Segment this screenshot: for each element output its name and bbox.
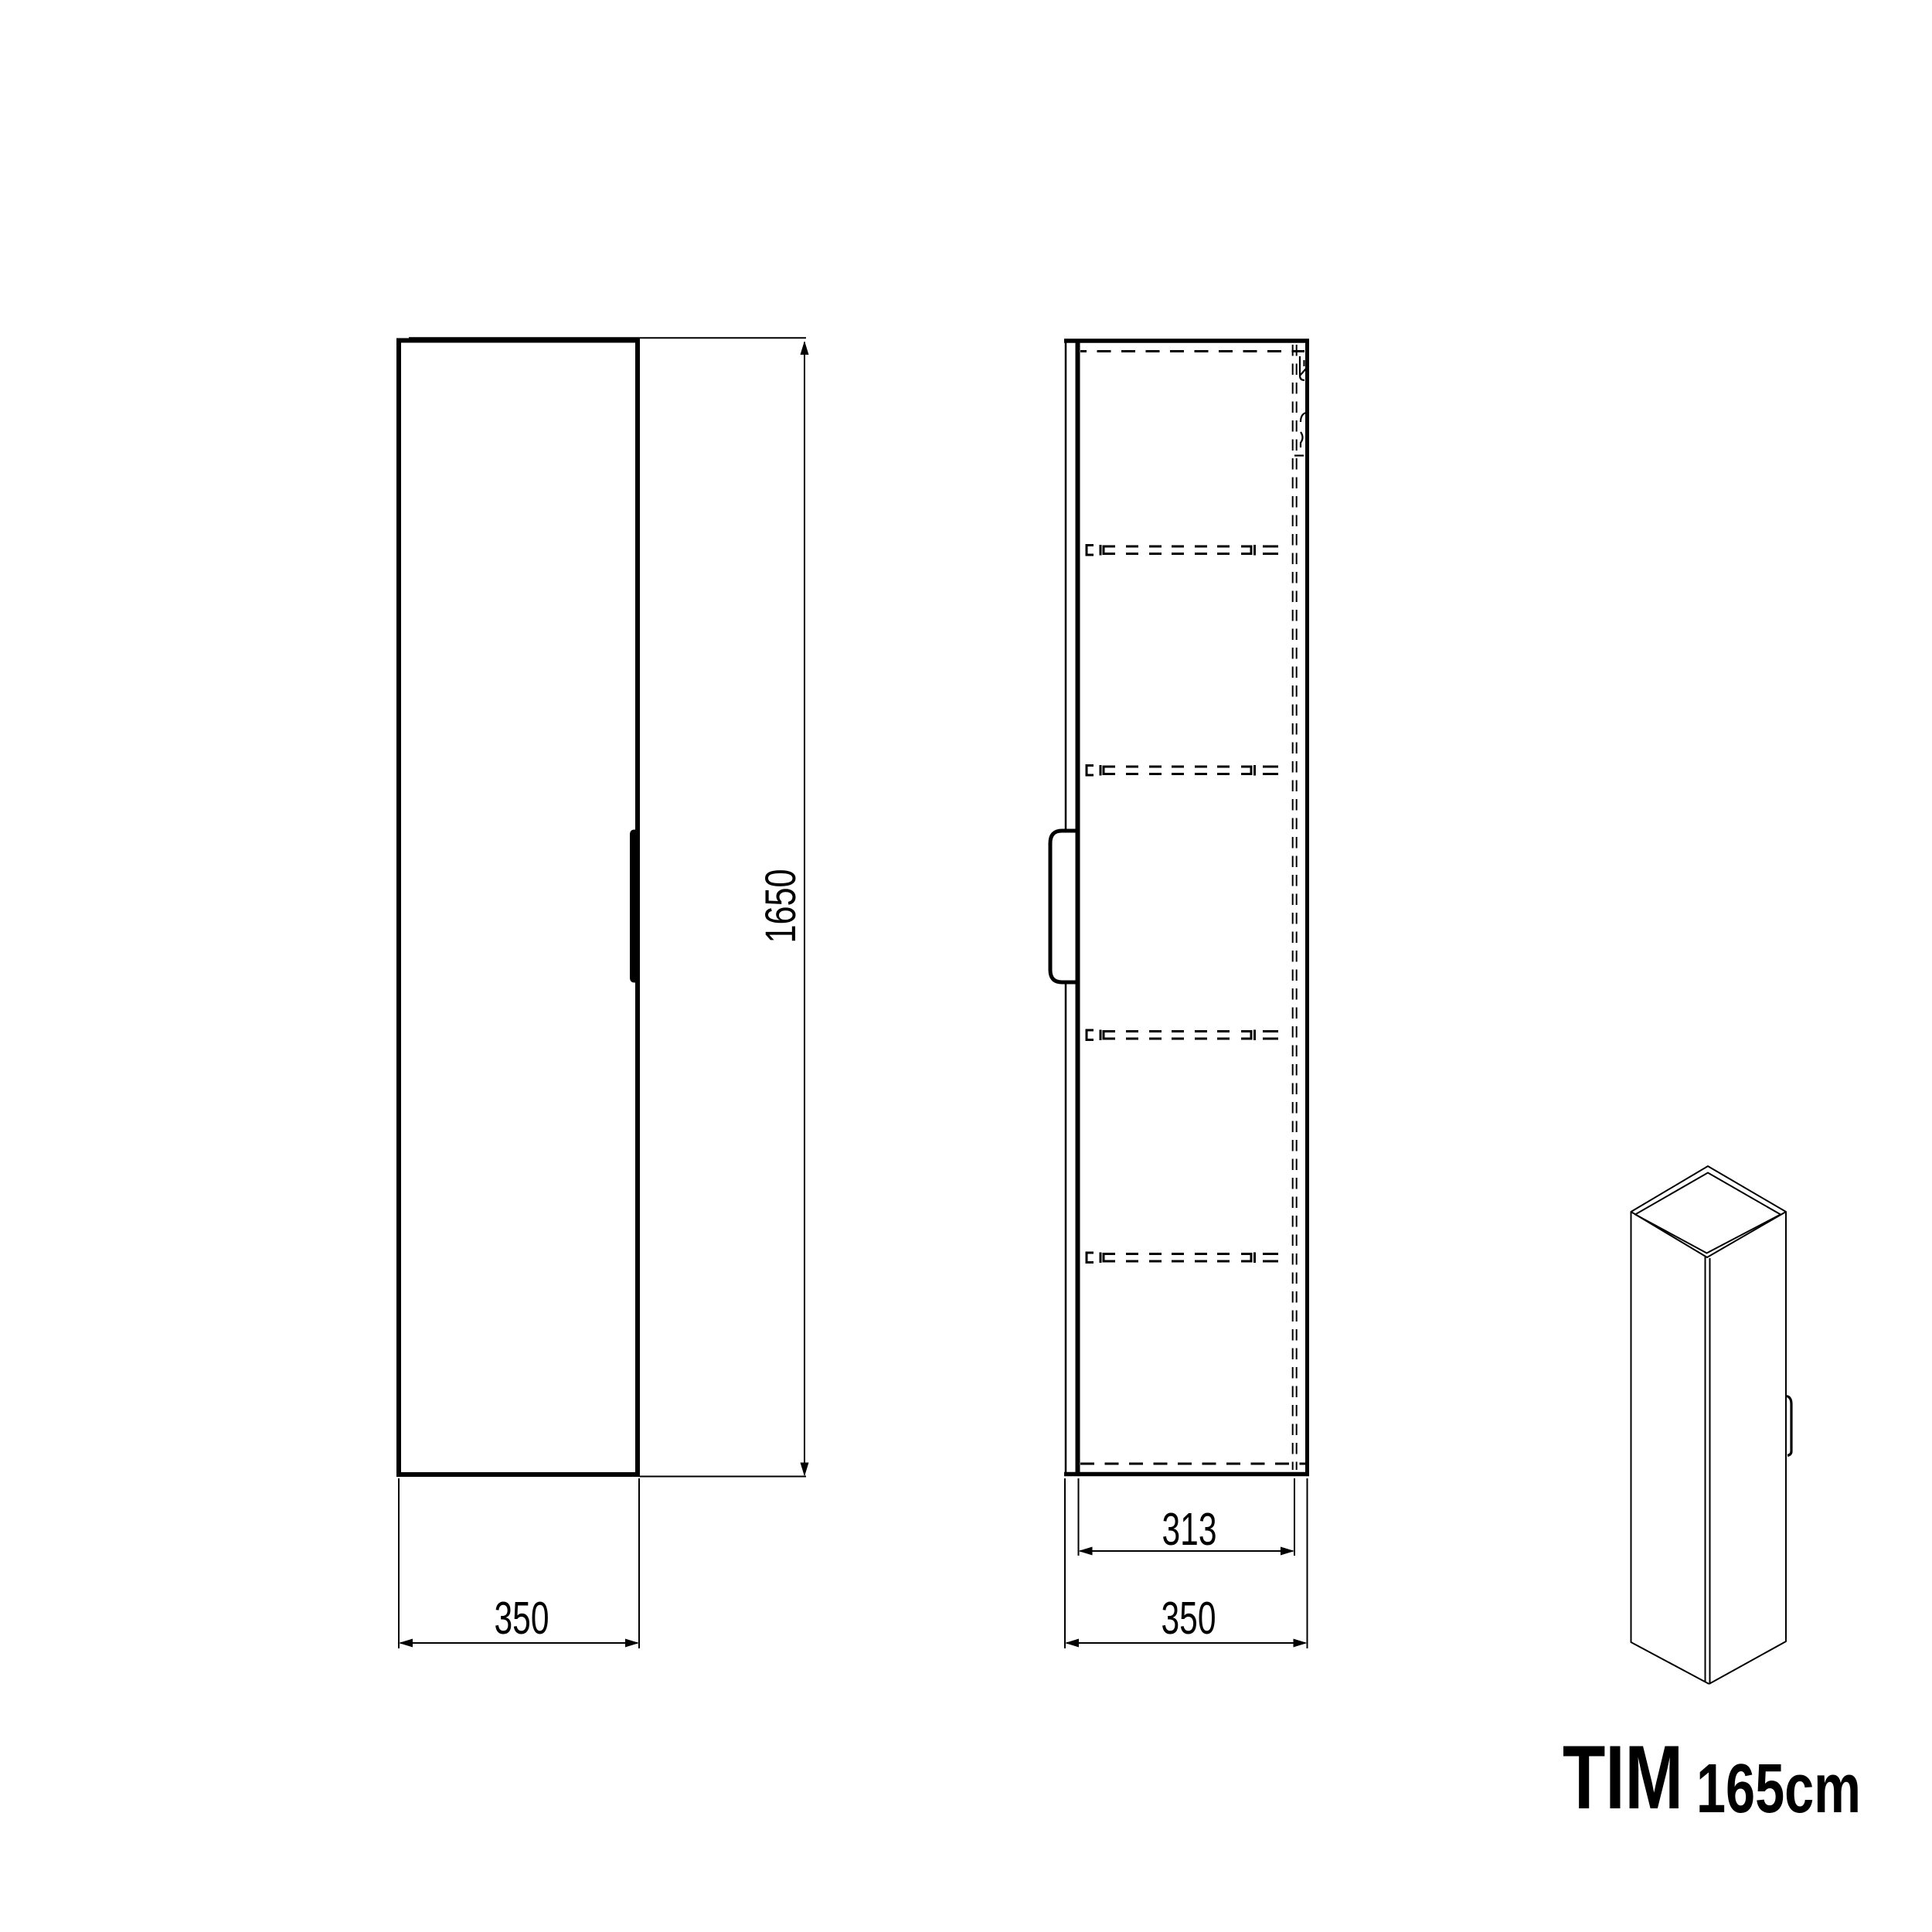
svg-text:350: 350 (1162, 1593, 1216, 1644)
svg-text:350: 350 (495, 1593, 549, 1644)
svg-text:313: 313 (1162, 1504, 1217, 1555)
svg-text:165cm: 165cm (1696, 1750, 1861, 1828)
svg-text:TIM: TIM (1563, 1726, 1683, 1828)
svg-text:1650: 1650 (756, 869, 804, 944)
